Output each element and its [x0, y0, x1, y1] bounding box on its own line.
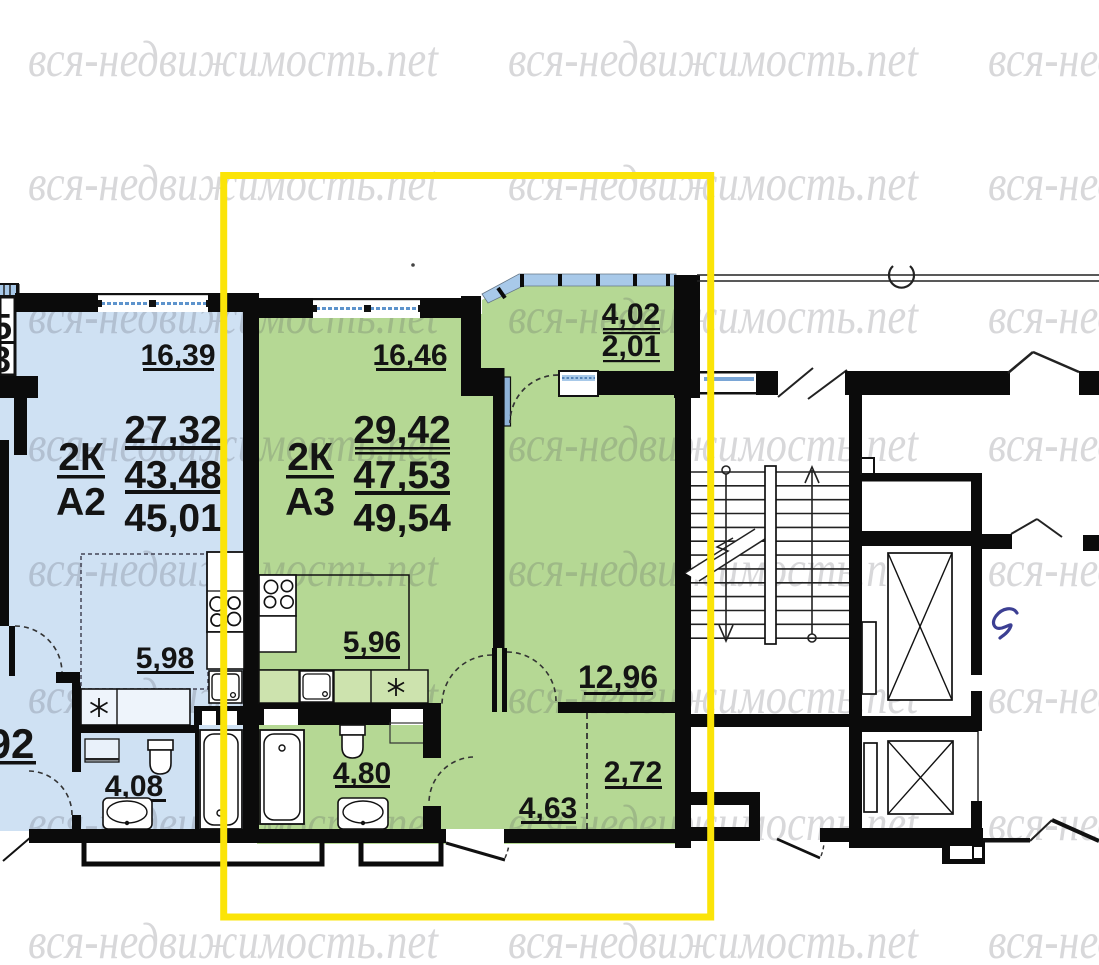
svg-text:3: 3	[0, 339, 11, 380]
svg-text:2К: 2К	[287, 436, 333, 479]
svg-text:5,98: 5,98	[136, 642, 194, 675]
svg-text:вся-недвижимость.net: вся-недвижимость.net	[508, 914, 920, 960]
svg-text:4,02: 4,02	[602, 298, 660, 331]
svg-text:45,01: 45,01	[124, 497, 222, 540]
svg-text:А2: А2	[56, 481, 106, 524]
svg-text:47,53: 47,53	[353, 454, 451, 497]
svg-text:29,42: 29,42	[353, 409, 451, 452]
svg-text:16,39: 16,39	[140, 339, 215, 372]
svg-text:вся-недвижимость.net: вся-недвижимость.net	[988, 156, 1099, 212]
svg-text:вся-недвижимость.net: вся-недвижимость.net	[988, 796, 1099, 852]
svg-text:вся-недвижимость.net: вся-недвижимость.net	[988, 914, 1099, 960]
svg-text:вся-недвижимость.net: вся-недвижимость.net	[508, 32, 920, 88]
svg-text:16,46: 16,46	[372, 339, 447, 372]
svg-text:вся-недвижимость.net: вся-недвижимость.net	[988, 542, 1099, 598]
svg-text:92: 92	[0, 720, 34, 767]
svg-text:вся-недвижимость.net: вся-недвижимость.net	[28, 914, 440, 960]
svg-text:12,96: 12,96	[578, 659, 658, 695]
svg-text:вся-недвижимость.net: вся-недвижимость.net	[28, 156, 440, 212]
svg-text:вся-недвижимость.net: вся-недвижимость.net	[988, 32, 1099, 88]
svg-text:49,54: 49,54	[353, 497, 451, 540]
svg-text:вся-недвижимость.net: вся-недвижимость.net	[988, 669, 1099, 725]
svg-text:2,72: 2,72	[604, 756, 662, 789]
svg-text:вся-недвижимость.net: вся-недвижимость.net	[988, 417, 1099, 473]
svg-text:вся-недвижимость.net: вся-недвижимость.net	[28, 32, 440, 88]
svg-text:27,32: 27,32	[124, 409, 222, 452]
svg-text:4,63: 4,63	[519, 792, 577, 825]
svg-text:А3: А3	[285, 481, 335, 524]
svg-text:5,96: 5,96	[343, 626, 401, 659]
svg-text:вся-недвижимость.net: вся-недвижимость.net	[988, 289, 1099, 345]
svg-text:2,01: 2,01	[602, 330, 660, 363]
svg-text:2К: 2К	[58, 436, 104, 479]
